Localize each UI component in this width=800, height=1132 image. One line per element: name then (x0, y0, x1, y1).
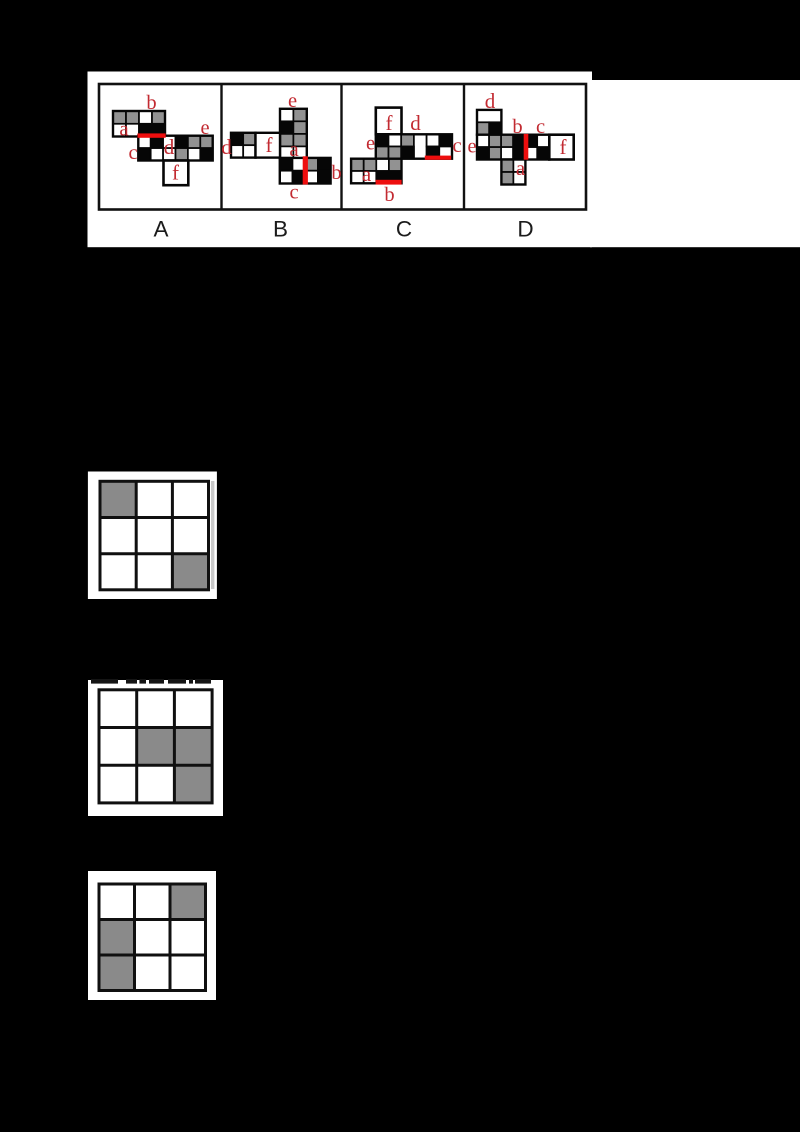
svg-text:b: b (384, 184, 394, 206)
svg-text:e: e (467, 136, 476, 158)
svg-text:a: a (289, 137, 299, 161)
svg-text:d: d (164, 135, 175, 159)
svg-text:d: d (410, 111, 421, 135)
svg-text:D: D (517, 217, 533, 242)
svg-text:f: f (560, 135, 567, 159)
svg-text:c: c (289, 182, 298, 204)
svg-text:B: B (273, 217, 288, 242)
svg-text:C: C (396, 217, 412, 242)
svg-text:a: a (119, 117, 129, 141)
svg-text:e: e (288, 90, 297, 112)
svg-text:b: b (146, 92, 156, 114)
svg-text:f: f (172, 161, 179, 185)
svg-text:e: e (366, 133, 375, 155)
svg-text:c: c (452, 135, 461, 157)
svg-text:d: d (221, 135, 232, 159)
svg-text:d: d (485, 89, 496, 113)
svg-text:f: f (386, 111, 393, 135)
svg-text:f: f (266, 133, 273, 157)
svg-text:c: c (128, 142, 137, 164)
svg-text:b: b (331, 162, 341, 184)
svg-text:A: A (153, 217, 168, 242)
svg-text:b: b (512, 116, 522, 138)
svg-text:e: e (200, 117, 209, 139)
svg-text:c: c (536, 116, 545, 138)
svg-text:a: a (362, 162, 372, 186)
svg-text:a: a (516, 156, 526, 180)
